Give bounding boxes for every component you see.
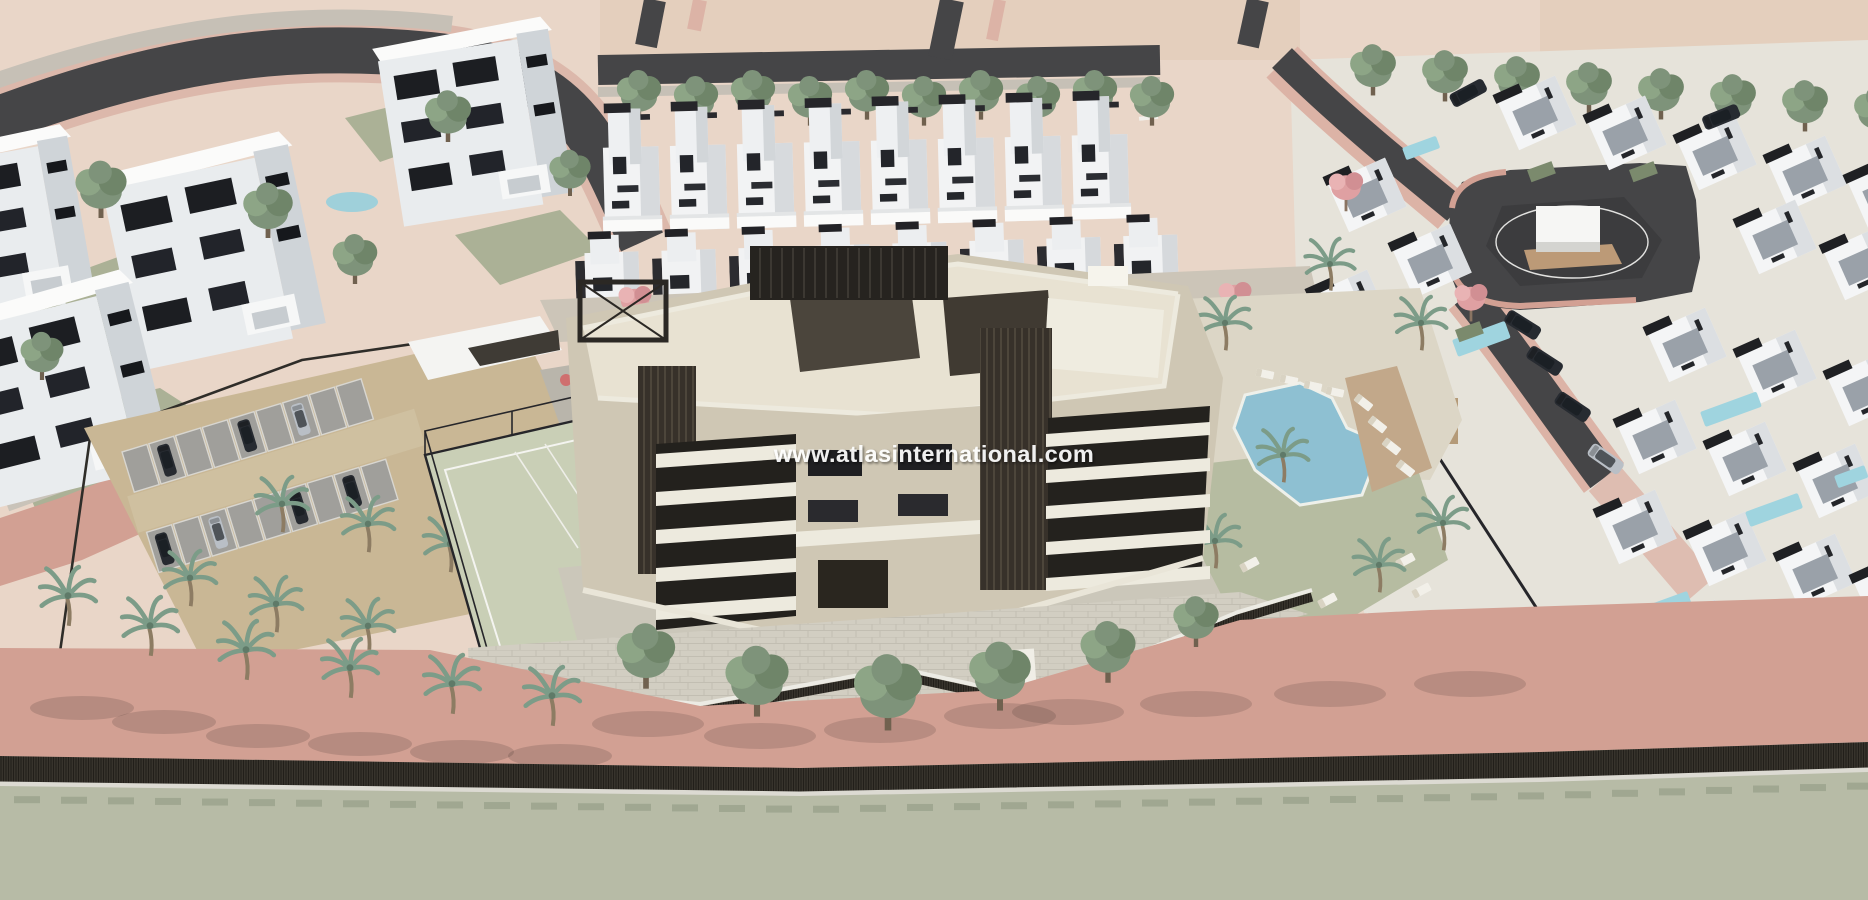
watermark-text: www.atlasinternational.com bbox=[773, 441, 1094, 467]
render-canvas: www.atlasinternational.com bbox=[0, 0, 1868, 900]
neighbor-apartment-building bbox=[371, 15, 578, 227]
aerial-render-3d: www.atlasinternational.com bbox=[0, 0, 1868, 900]
utility-box bbox=[1536, 206, 1600, 248]
